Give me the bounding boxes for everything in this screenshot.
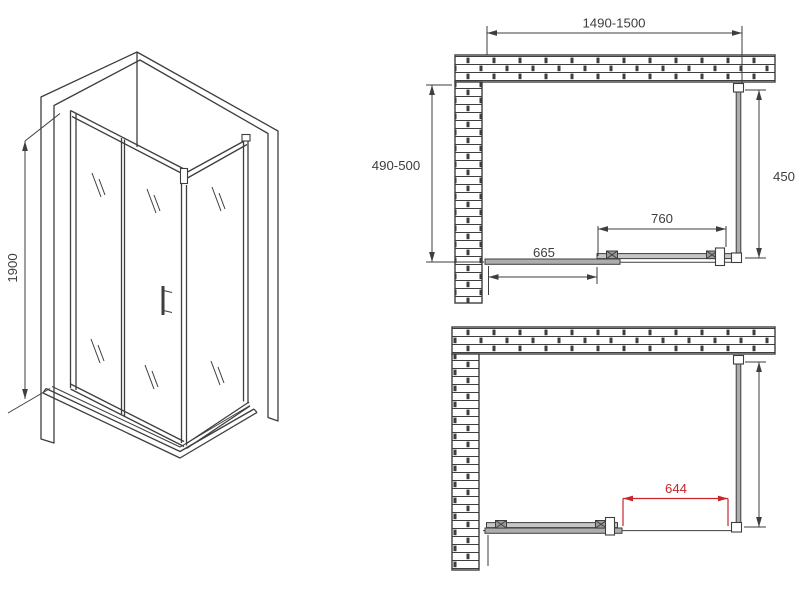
door-stile: [606, 518, 615, 536]
dimension-door-width: 760: [598, 211, 726, 256]
door-top-rail: [71, 111, 185, 175]
corner-post: [182, 183, 187, 446]
fixed-panel-bar: [485, 528, 622, 533]
brick-wall-left: [452, 354, 479, 570]
dimension-side-panel-label: 450: [773, 169, 795, 184]
dimension-door-width-label: 760: [651, 211, 673, 226]
dimension-fixed-panel-label: 665: [533, 245, 555, 260]
drawing-canvas: 1900 1490-1500 490-500 450: [0, 0, 800, 592]
dimension-total-width-label: 1490-1500: [582, 16, 645, 31]
side-panel-wall-cap: [242, 135, 250, 142]
door-roller: [496, 521, 507, 529]
side-panel-wall-bracket: [734, 356, 744, 365]
side-panel-profile: [736, 87, 741, 258]
dimension-fixed-panel: 665: [489, 245, 598, 295]
side-panel-top-rail: [188, 140, 248, 178]
dimension-depth-label: 490-500: [372, 158, 420, 173]
dimension-side-panel: 450: [745, 90, 795, 258]
isometric-view: 1900: [5, 52, 278, 458]
door-roller: [607, 251, 618, 259]
rail-end-bracket: [732, 253, 742, 263]
side-panel-profile: [736, 359, 741, 527]
dimension-opening-width: 644: [623, 481, 728, 526]
top-plan-view: 1490-1500 490-500 450: [372, 16, 795, 304]
dimension-height-label: 1900: [5, 253, 20, 282]
brick-wall-left: [455, 82, 482, 303]
door-roller: [596, 521, 607, 529]
door-frame-left-post: [71, 111, 77, 391]
glass-reflection-marks: [91, 173, 225, 389]
brick-wall-back: [452, 327, 775, 354]
technical-drawing: 1900 1490-1500 490-500 450: [0, 0, 800, 592]
bottom-rail-side: [187, 402, 251, 449]
side-panel-back-post: [244, 139, 249, 404]
door-stile: [716, 248, 725, 266]
door-handle: [163, 286, 172, 315]
dimension-height: 1900: [5, 114, 60, 414]
rail-end-bracket: [732, 523, 742, 533]
dimension-opening-width-label: 644: [665, 481, 687, 496]
brick-wall-back: [455, 55, 775, 82]
door-mullion: [122, 138, 125, 417]
door-corner-cap: [181, 169, 188, 184]
bottom-rail-front: [71, 384, 185, 447]
side-panel-wall-bracket: [734, 84, 744, 93]
dimension-side-unlabeled: [744, 362, 766, 527]
open-plan-view: 644: [452, 327, 775, 570]
